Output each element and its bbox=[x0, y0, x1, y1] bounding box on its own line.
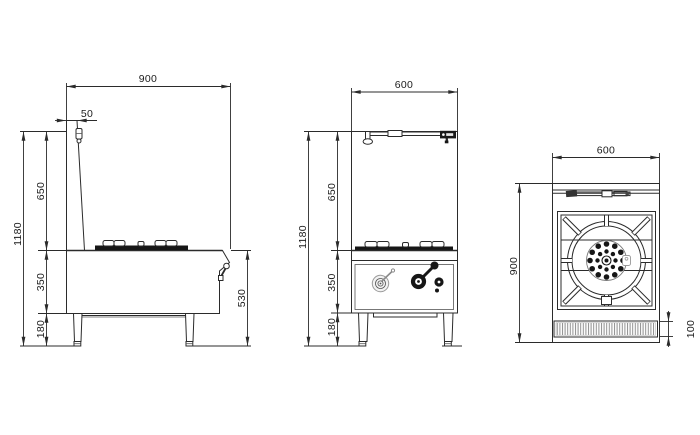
dim-side-overall-height: 1180 bbox=[12, 222, 24, 246]
dim-front-overall-height: 1180 bbox=[297, 225, 309, 249]
dim-front-backsplash-height: 650 bbox=[326, 183, 338, 201]
side-backsplash-panel bbox=[67, 121, 85, 251]
dim-side-leg-height: 180 bbox=[35, 320, 47, 338]
top-front-trough bbox=[554, 321, 658, 337]
front-legs bbox=[359, 313, 454, 346]
brand-badge bbox=[440, 131, 456, 139]
dim-top-overall-depth: 900 bbox=[508, 257, 520, 275]
dim-front-leg-height: 180 bbox=[326, 318, 338, 336]
top-view: 600 900 100 bbox=[508, 145, 697, 348]
side-faucet bbox=[76, 129, 82, 144]
dim-side-backsplash-height: 650 bbox=[35, 182, 47, 200]
front-view: 600 1180 650 350 180 bbox=[297, 79, 462, 346]
dim-front-overall-width: 600 bbox=[395, 79, 413, 91]
drawing-canvas: 900 50 650 1180 350 180 530 bbox=[0, 0, 700, 435]
dim-side-overall-depth: 900 bbox=[139, 73, 157, 85]
dim-side-worktop-height: 530 bbox=[236, 289, 248, 307]
dim-top-trough-depth: 100 bbox=[685, 320, 697, 338]
dim-top-overall-width: 600 bbox=[597, 145, 615, 157]
front-burner-grate-profile bbox=[355, 242, 453, 251]
technical-drawing: 900 50 650 1180 350 180 530 bbox=[0, 0, 700, 435]
dim-side-body-height: 350 bbox=[35, 273, 47, 291]
side-body bbox=[67, 251, 230, 314]
dim-side-flue-gap: 50 bbox=[81, 108, 93, 120]
side-burner-grate-profile bbox=[95, 241, 188, 251]
side-view: 900 50 650 1180 350 180 530 bbox=[12, 73, 251, 346]
side-legs bbox=[74, 314, 195, 347]
dim-front-body-height: 350 bbox=[326, 273, 338, 291]
